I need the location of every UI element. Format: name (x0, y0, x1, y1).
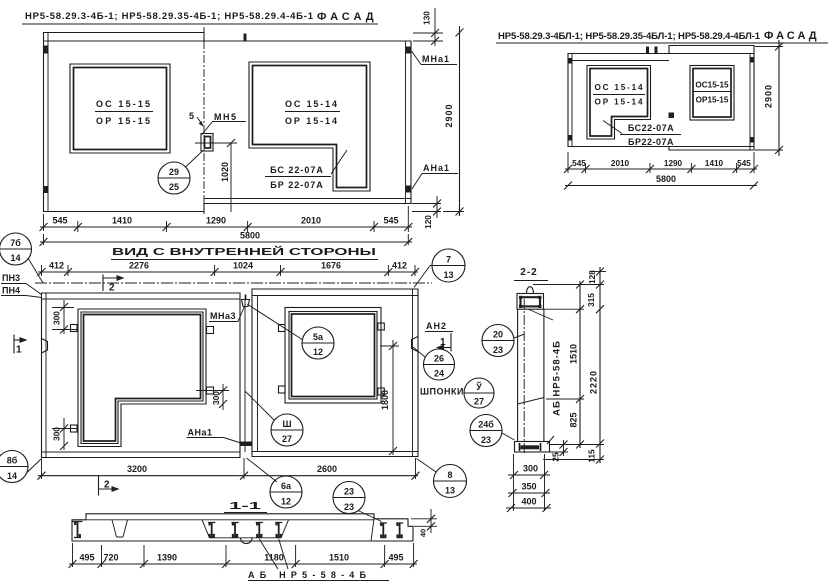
svg-text:5: 5 (189, 111, 194, 121)
svg-text:НР5-58.29.3-4Б-1; НР5-58.29.35: НР5-58.29.3-4Б-1; НР5-58.29.35-4Б-1; НР5… (25, 11, 314, 22)
svg-text:5а: 5а (313, 332, 324, 342)
svg-text:300: 300 (523, 464, 538, 474)
svg-text:13: 13 (443, 270, 453, 280)
svg-text:ОР15-15: ОР15-15 (696, 96, 729, 105)
svg-text:1: 1 (440, 337, 446, 348)
svg-text:27: 27 (474, 397, 484, 407)
svg-text:ОС15-15: ОС15-15 (695, 81, 729, 90)
svg-text:25: 25 (552, 452, 561, 462)
svg-text:2900: 2900 (444, 103, 454, 127)
svg-text:ШПОНКИ: ШПОНКИ (420, 387, 464, 397)
svg-text:12: 12 (281, 497, 291, 507)
svg-text:МН5: МН5 (214, 112, 238, 122)
svg-text:АНа1: АНа1 (188, 428, 213, 438)
svg-text:1800: 1800 (380, 390, 390, 410)
svg-text:2-2: 2-2 (520, 267, 537, 278)
svg-text:БС22-07А: БС22-07А (628, 123, 674, 133)
svg-text:300: 300 (53, 311, 62, 325)
svg-text:7б: 7б (10, 238, 21, 248)
svg-text:495: 495 (388, 553, 403, 563)
svg-text:27: 27 (282, 434, 292, 444)
svg-text:МНа1: МНа1 (422, 54, 450, 64)
svg-text:БР 22-07А: БР 22-07А (270, 180, 324, 190)
svg-text:ФАСАД: ФАСАД (317, 11, 378, 23)
svg-text:25: 25 (169, 182, 179, 192)
svg-text:23: 23 (344, 502, 354, 512)
svg-text:ВИД С ВНУТРЕННЕЙ СТОРОНЫ: ВИД С ВНУТРЕННЕЙ СТОРОНЫ (112, 245, 376, 258)
svg-text:БР22-07А: БР22-07А (628, 137, 674, 147)
svg-text:130: 130 (423, 11, 432, 25)
svg-text:400: 400 (521, 497, 536, 507)
svg-text:7: 7 (446, 255, 451, 265)
svg-text:14: 14 (10, 253, 20, 263)
svg-text:24б: 24б (478, 420, 494, 430)
svg-text:40: 40 (418, 529, 427, 537)
svg-text:БС 22-07А: БС 22-07А (270, 165, 324, 175)
svg-text:23: 23 (481, 435, 491, 445)
svg-text:1290: 1290 (206, 216, 226, 226)
svg-text:23: 23 (493, 345, 503, 355)
svg-text:3200: 3200 (127, 464, 147, 474)
svg-text:115: 115 (588, 449, 597, 463)
svg-text:545: 545 (383, 216, 398, 226)
svg-text:1290: 1290 (664, 159, 683, 168)
svg-text:1510: 1510 (329, 553, 349, 563)
svg-text:2010: 2010 (301, 216, 321, 226)
svg-text:ФАСАД: ФАСАД (764, 30, 820, 42)
svg-text:5800: 5800 (656, 174, 676, 184)
svg-text:1410: 1410 (705, 159, 724, 168)
svg-text:13: 13 (445, 486, 455, 496)
svg-text:НР5-58.29.3-4БЛ-1; НР5-58.29.3: НР5-58.29.3-4БЛ-1; НР5-58.29.35-4БЛ-1; Н… (498, 31, 761, 42)
svg-text:Ў: Ў (475, 381, 482, 392)
svg-text:120: 120 (424, 215, 433, 229)
svg-text:8: 8 (447, 470, 452, 480)
svg-text:1020: 1020 (220, 162, 230, 182)
svg-text:300: 300 (212, 391, 221, 405)
svg-text:2600: 2600 (317, 464, 337, 474)
svg-text:2010: 2010 (611, 159, 630, 168)
svg-text:8б: 8б (7, 456, 18, 466)
svg-text:26: 26 (434, 354, 444, 364)
svg-text:6а: 6а (281, 481, 292, 491)
svg-text:545: 545 (737, 159, 751, 168)
svg-text:2276: 2276 (129, 261, 149, 271)
svg-text:315: 315 (587, 293, 596, 307)
svg-text:495: 495 (79, 553, 94, 563)
svg-text:Ш: Ш (282, 419, 291, 429)
svg-text:29: 29 (169, 167, 179, 177)
svg-text:825: 825 (568, 412, 578, 427)
svg-text:1390: 1390 (157, 553, 177, 563)
svg-text:300: 300 (53, 427, 62, 441)
svg-text:2900: 2900 (763, 84, 773, 108)
svg-text:АН2: АН2 (426, 321, 447, 331)
svg-text:23: 23 (344, 487, 354, 497)
svg-text:АБ НР5-58-4Б: АБ НР5-58-4Б (552, 340, 563, 416)
svg-text:2220: 2220 (588, 370, 598, 394)
svg-text:МНа3: МНа3 (210, 311, 236, 321)
svg-text:350: 350 (521, 482, 536, 492)
svg-text:1510: 1510 (568, 344, 578, 364)
svg-text:128: 128 (588, 270, 597, 284)
svg-text:1180: 1180 (264, 553, 284, 563)
svg-text:АНа1: АНа1 (423, 163, 450, 173)
svg-text:ОС 15-14: ОС 15-14 (595, 83, 643, 92)
svg-text:5800: 5800 (240, 231, 260, 241)
svg-text:2: 2 (104, 480, 110, 491)
svg-text:ПН3: ПН3 (2, 273, 20, 283)
svg-text:12: 12 (313, 347, 323, 357)
svg-text:1-1: 1-1 (229, 501, 262, 512)
svg-text:1024: 1024 (233, 261, 253, 271)
svg-text:545: 545 (52, 216, 67, 226)
svg-text:14: 14 (7, 471, 17, 481)
svg-text:2: 2 (109, 283, 115, 294)
svg-text:ПН4: ПН4 (2, 286, 20, 296)
svg-text:412: 412 (49, 261, 64, 271)
svg-text:24: 24 (434, 369, 444, 379)
svg-text:545: 545 (572, 159, 586, 168)
svg-text:1676: 1676 (321, 261, 341, 271)
svg-text:412: 412 (392, 261, 407, 271)
svg-text:720: 720 (103, 553, 118, 563)
svg-text:1: 1 (16, 345, 22, 356)
svg-text:1410: 1410 (112, 216, 132, 226)
svg-text:20: 20 (493, 330, 503, 340)
